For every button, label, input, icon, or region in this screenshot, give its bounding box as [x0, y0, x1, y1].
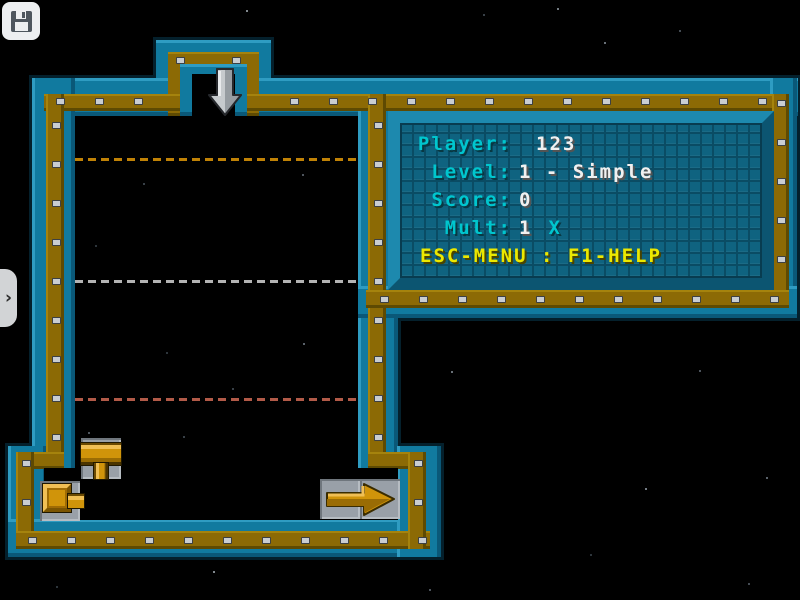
rivet: [340, 537, 349, 544]
rivet: [67, 537, 76, 544]
rivet: [458, 296, 467, 303]
hud-row-player: Player: 123: [404, 130, 776, 158]
rivet: [145, 537, 154, 544]
player-label: Player:: [404, 130, 512, 158]
save-button[interactable]: [2, 2, 40, 40]
rivet: [602, 98, 611, 105]
rivet: [758, 98, 767, 105]
rivet: [374, 239, 383, 246]
exit-arrow-piece: [320, 479, 400, 519]
down-arrow-icon: [206, 66, 244, 118]
rivet: [414, 499, 423, 506]
t-pipe-piece: [81, 438, 121, 479]
rivet: [777, 100, 786, 107]
star: [766, 477, 768, 479]
rivet: [719, 98, 728, 105]
start-cap-piece: [40, 481, 80, 521]
star: [483, 14, 485, 16]
well-interior: [75, 116, 358, 468]
rivet: [28, 537, 37, 544]
rivet: [485, 98, 494, 105]
rivet: [52, 122, 61, 129]
rivet: [22, 499, 31, 506]
star: [645, 488, 647, 490]
star: [303, 343, 305, 345]
rivet: [56, 98, 65, 105]
rivet: [52, 200, 61, 207]
sidebar-expander[interactable]: ›: [0, 269, 17, 327]
rivet: [692, 296, 701, 303]
rivet: [731, 296, 740, 303]
rivet: [52, 317, 61, 324]
rivet: [536, 296, 545, 303]
hud-row-mult: Mult: 1 X: [404, 214, 776, 242]
rivet: [497, 296, 506, 303]
hud-text: Player: 123 Level: 1 - Simple Score: 0 M…: [404, 130, 776, 270]
level-label: Level:: [404, 158, 512, 186]
pipe-horizontal: [81, 443, 121, 465]
down-arrow-piece: [206, 66, 244, 118]
game-board: Player: 123 Level: 1 - Simple Score: 0 M…: [0, 0, 800, 600]
rivet: [52, 356, 61, 363]
exit-arrow-icon: [320, 479, 400, 519]
rivet: [176, 57, 185, 64]
star: [183, 436, 185, 438]
rivet: [106, 537, 115, 544]
rivet: [374, 395, 383, 402]
rivet: [777, 256, 786, 263]
star: [302, 174, 304, 176]
rivet: [446, 98, 455, 105]
pipe-stub-down: [94, 463, 108, 479]
rivet: [52, 395, 61, 402]
rivet: [777, 217, 786, 224]
rivet: [777, 139, 786, 146]
rivet: [374, 200, 383, 207]
star: [451, 371, 453, 373]
rivet: [52, 161, 61, 168]
hud-row-score: Score: 0: [404, 186, 776, 214]
player-value: 123: [536, 130, 576, 158]
mult-suffix: X: [548, 214, 561, 242]
rivet: [184, 537, 193, 544]
star: [557, 8, 559, 10]
rivet: [641, 98, 650, 105]
score-label: Score:: [404, 186, 512, 214]
rivet: [374, 161, 383, 168]
star: [166, 352, 168, 354]
level-value: 1 - Simple: [519, 158, 653, 186]
rivet: [777, 178, 786, 185]
star: [143, 183, 145, 185]
rivet: [575, 296, 584, 303]
guide-line-orange: [75, 158, 358, 161]
rivet: [223, 537, 232, 544]
rivet: [134, 98, 143, 105]
rivet: [95, 98, 104, 105]
rivet: [374, 356, 383, 363]
rivet: [524, 98, 533, 105]
chevron-right-icon: ›: [5, 288, 12, 308]
rivet: [52, 278, 61, 285]
rivet: [368, 98, 377, 105]
star: [429, 589, 431, 591]
rivet: [301, 537, 310, 544]
rivet: [379, 537, 388, 544]
rivet: [374, 122, 383, 129]
rivet: [418, 537, 427, 544]
rivet: [407, 98, 416, 105]
rivet: [374, 317, 383, 324]
star: [232, 388, 234, 390]
star: [699, 370, 701, 372]
star: [748, 583, 750, 585]
star: [590, 554, 592, 556]
rivet: [414, 460, 423, 467]
floppy-disk-icon: [11, 11, 32, 32]
mult-label: Mult:: [404, 214, 512, 242]
rivet: [380, 296, 389, 303]
hud-row-level: Level: 1 - Simple: [404, 158, 776, 186]
rivet: [290, 98, 299, 105]
star: [95, 245, 97, 247]
guide-line-red: [75, 398, 358, 401]
rivet: [52, 239, 61, 246]
star: [604, 42, 606, 44]
rivet: [680, 98, 689, 105]
rivet: [329, 98, 338, 105]
star: [56, 586, 58, 588]
rivet: [374, 278, 383, 285]
guide-line-gray: [75, 280, 358, 283]
mult-value: 1: [519, 214, 532, 242]
score-value: 0: [519, 186, 532, 214]
help-text: ESC-MENU : F1-HELP: [420, 242, 776, 270]
rivet: [52, 434, 61, 441]
rivet: [563, 98, 572, 105]
star: [88, 432, 90, 434]
rivet: [262, 537, 271, 544]
pipe-stub-right: [68, 494, 84, 508]
rivet: [232, 57, 241, 64]
pipe-cap: [43, 484, 71, 512]
game-screen: Player: 123 Level: 1 - Simple Score: 0 M…: [0, 0, 800, 600]
rivet: [770, 296, 779, 303]
rivet: [374, 434, 383, 441]
star: [246, 10, 248, 12]
rivet: [22, 460, 31, 467]
star: [213, 571, 215, 573]
rivet: [419, 296, 428, 303]
rivet: [614, 296, 623, 303]
star: [679, 30, 681, 32]
rivet: [653, 296, 662, 303]
